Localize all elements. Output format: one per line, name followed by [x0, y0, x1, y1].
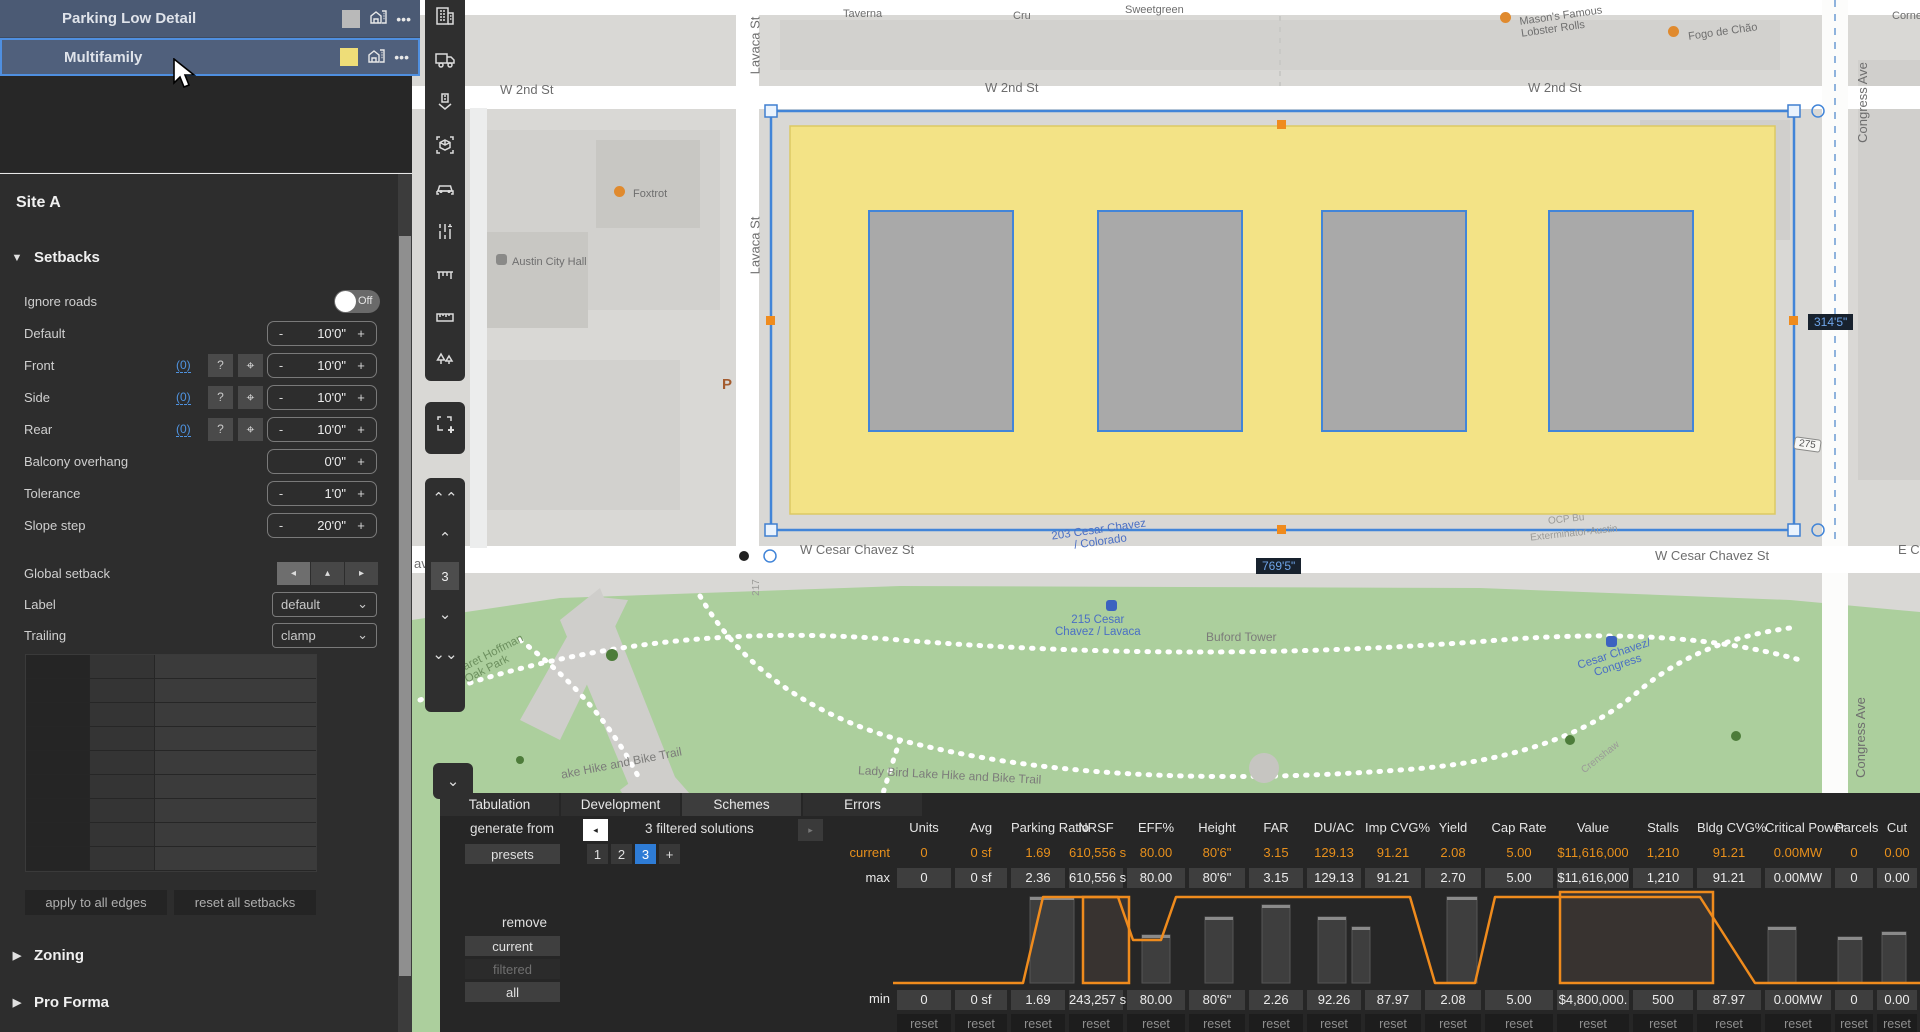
stepper-value[interactable]: 10'0"	[294, 390, 346, 405]
cur-value: 2.08	[1425, 845, 1481, 860]
mn-value: 0.00	[1877, 990, 1917, 1010]
setback-stepper[interactable]: -20'0"+	[267, 513, 377, 538]
setback-row: Balcony overhang0'0"+	[0, 448, 412, 474]
restaurant-icon	[1500, 12, 1511, 23]
ignore-roads-toggle[interactable]: Off	[334, 290, 380, 313]
column-header: Stalls	[1633, 820, 1693, 835]
cur-value: 1,210	[1633, 845, 1693, 860]
column-header: Cut	[1877, 820, 1917, 835]
mx-value: 0 sf	[955, 868, 1007, 888]
cur-value: 80'6"	[1189, 845, 1245, 860]
lanes-adjust-icon[interactable]	[425, 209, 465, 252]
filtered-solutions-label: 3 filtered solutions	[645, 821, 754, 836]
mx-value: 3.15	[1249, 868, 1303, 888]
global-setback-arrow-button[interactable]: ◂	[277, 562, 310, 585]
collapse-triangle-icon[interactable]: ▼	[0, 252, 34, 264]
expand-triangle-icon[interactable]: ▶	[0, 996, 34, 1009]
edge-count-link[interactable]: (0)	[176, 390, 191, 405]
layers-panel: Parking Low Detail•••Multifamily•••	[0, 0, 420, 76]
reset-button[interactable]: reset	[1835, 1014, 1873, 1032]
reset-button[interactable]: reset	[1189, 1014, 1245, 1032]
mn-value: 1.69	[1011, 990, 1065, 1010]
edge-grid-row[interactable]	[26, 799, 316, 823]
level-switcher: ⌃⌃ ⌃ 3 ⌄ ⌄⌄	[425, 478, 465, 712]
setbacks-section-label: Setbacks	[34, 249, 100, 266]
setback-row: Side(0)?⌖-10'0"+	[0, 384, 412, 410]
current-row-label: current	[830, 845, 890, 860]
mx-value: $11,616,000	[1557, 868, 1629, 888]
max-row-label: max	[830, 870, 890, 885]
scheme-button-1[interactable]: 1	[587, 844, 608, 864]
edge-count-link[interactable]: (0)	[176, 422, 191, 437]
stepper-minus-button[interactable]: -	[268, 358, 294, 373]
sidebar-scrollbar[interactable]	[398, 174, 412, 1032]
tab-tabulation[interactable]: Tabulation	[440, 793, 559, 816]
edge-grid-row[interactable]	[26, 775, 316, 799]
transit-stop-icon	[1606, 636, 1617, 647]
setback-stepper[interactable]: -1'0"+	[267, 481, 377, 506]
car-icon[interactable]	[425, 166, 465, 209]
dimension-badge-height: 314'5"	[1808, 314, 1853, 330]
mx-value: 0.00MW	[1765, 868, 1831, 888]
mx-value: 91.21	[1697, 868, 1761, 888]
cur-value: 0.00MW	[1765, 845, 1831, 860]
layer-menu-button[interactable]: •••	[394, 49, 409, 65]
setback-row-label: Side	[0, 390, 50, 405]
chevron-down-icon: ⌄	[357, 596, 368, 612]
transit-stop-icon	[1106, 600, 1117, 611]
bench-icon[interactable]	[425, 252, 465, 295]
setback-row: Default-10'0"+	[0, 320, 412, 346]
mn-value: 0.00MW	[1765, 990, 1831, 1010]
scheme-button-2[interactable]: 2	[611, 844, 632, 864]
trailing-dropdown[interactable]: clamp⌄	[272, 623, 377, 648]
building-icon[interactable]	[367, 48, 385, 67]
reset-button[interactable]: reset	[1307, 1014, 1361, 1032]
mn-value: 87.97	[1697, 990, 1761, 1010]
city-hall-icon	[496, 254, 507, 265]
mx-value: 0	[897, 868, 951, 888]
global-setback-arrow-button[interactable]: ▴	[311, 562, 344, 585]
toggle-knob	[335, 291, 356, 312]
marquee-add-icon[interactable]	[425, 402, 465, 445]
mn-value: 80.00	[1127, 990, 1185, 1010]
mx-value: 80'6"	[1189, 868, 1245, 888]
zoning-section-label: Zoning	[34, 947, 84, 964]
mn-value: 243,257 s	[1069, 990, 1123, 1010]
mx-value: 1,210	[1633, 868, 1693, 888]
proforma-section-header[interactable]: ▶ Pro Forma	[0, 994, 109, 1011]
layer-name: Parking Low Detail	[0, 10, 342, 27]
office-building-icon[interactable]	[425, 0, 465, 37]
stepper-minus-button[interactable]: -	[268, 422, 294, 437]
mx-value: 0.00	[1877, 868, 1917, 888]
cur-value: 0 sf	[955, 845, 1007, 860]
reset-button[interactable]: reset	[1249, 1014, 1303, 1032]
cur-value: 610,556 s	[1069, 845, 1123, 860]
mn-value: 0	[897, 990, 951, 1010]
cur-value: 91.21	[1697, 845, 1761, 860]
prev-solution-button[interactable]: ◂	[583, 819, 608, 841]
zoning-section-header[interactable]: ▶ Zoning	[0, 947, 84, 964]
level-up-fast-button[interactable]: ⌃⌃	[425, 478, 465, 518]
stepper-value[interactable]: 1'0"	[294, 486, 346, 501]
mx-value: 5.00	[1485, 868, 1553, 888]
column-header: Cap Rate	[1485, 820, 1553, 835]
reset-button[interactable]: reset	[1557, 1014, 1629, 1032]
setback-row: Tolerance-1'0"+	[0, 480, 412, 506]
column-header: EFF%	[1127, 820, 1185, 835]
mx-value: 2.70	[1425, 868, 1481, 888]
setback-stepper[interactable]: -10'0"+	[267, 417, 377, 442]
edge-grid-row[interactable]	[26, 751, 316, 775]
column-header: Height	[1189, 820, 1245, 835]
mn-value: 0 sf	[955, 990, 1007, 1010]
building-icon[interactable]	[369, 9, 387, 28]
layer-menu-button[interactable]: •••	[396, 11, 411, 27]
level-down-button[interactable]: ⌄	[425, 594, 465, 634]
layer-name: Multifamily	[2, 49, 340, 66]
stepper-plus-button[interactable]: +	[346, 518, 376, 533]
help-button[interactable]: ?	[208, 354, 233, 377]
layer-row[interactable]: Parking Low Detail•••	[0, 0, 420, 38]
label-dropdown[interactable]: default⌄	[272, 592, 377, 617]
cur-value: 1.69	[1011, 845, 1065, 860]
global-setback-arrow-button[interactable]: ▸	[345, 562, 378, 585]
layer-color-swatch[interactable]	[342, 10, 360, 28]
setback-row-label: Slope step	[0, 518, 85, 533]
global-setback-label: Global setback	[0, 566, 110, 581]
label-row: Label default⌄	[0, 591, 412, 617]
global-setback-row: Global setback ◂▴▸	[0, 560, 412, 586]
column-header: Bldg CVG%	[1697, 820, 1761, 835]
cur-value: 5.00	[1485, 845, 1553, 860]
setback-row: Slope step-20'0"+	[0, 512, 412, 538]
edge-grid-row[interactable]	[26, 703, 316, 727]
reset-button[interactable]: reset	[897, 1014, 951, 1032]
setback-stepper[interactable]: 0'0"+	[267, 449, 377, 474]
setback-row-label: Rear	[0, 422, 52, 437]
edge-grid-row[interactable]	[26, 655, 316, 679]
reset-button[interactable]: reset	[1485, 1014, 1553, 1032]
setback-row: Ignore roadsOff	[0, 288, 412, 314]
cafe-icon	[614, 186, 625, 197]
column-header: Value	[1557, 820, 1629, 835]
setback-stepper[interactable]: -10'0"+	[267, 321, 377, 346]
remove-current-button[interactable]: current	[465, 936, 560, 956]
reset-button[interactable]: reset	[1365, 1014, 1421, 1032]
app-root: W 2nd StW 2nd StW 2nd StLavaca StLavaca …	[0, 0, 1920, 1032]
mx-value: 80.00	[1127, 868, 1185, 888]
stepper-plus-button[interactable]: +	[346, 454, 376, 469]
truck-icon[interactable]	[425, 37, 465, 80]
level-up-button[interactable]: ⌃	[425, 518, 465, 558]
mx-value: 0	[1835, 868, 1873, 888]
stepper-plus-button[interactable]: +	[346, 486, 376, 501]
reset-button[interactable]: reset	[1697, 1014, 1761, 1032]
reset-button[interactable]: reset	[1127, 1014, 1185, 1032]
help-button[interactable]: ?	[208, 418, 233, 441]
focus-3d-box-icon[interactable]	[425, 123, 465, 166]
setback-row: Front(0)?⌖-10'0"+	[0, 352, 412, 378]
column-header: NRSF	[1069, 820, 1123, 835]
setback-stepper[interactable]: -10'0"+	[267, 385, 377, 410]
cur-value: 3.15	[1249, 845, 1303, 860]
marquee-tool-panel	[425, 402, 465, 454]
column-header: Avg	[955, 820, 1007, 835]
generate-from-label: generate from	[470, 821, 554, 836]
stepper-plus-button[interactable]: +	[346, 326, 376, 341]
stepper-value[interactable]: 10'0"	[294, 422, 346, 437]
stepper-minus-button[interactable]: -	[268, 390, 294, 405]
site-title: Site A	[0, 174, 412, 212]
setback-row-label: Default	[0, 326, 65, 341]
column-header: Critical Power	[1765, 820, 1831, 835]
help-button[interactable]: ?	[208, 386, 233, 409]
stepper-value[interactable]: 10'0"	[294, 326, 346, 341]
scheme-button-3[interactable]: 3	[635, 844, 656, 864]
reset-button[interactable]: reset	[1069, 1014, 1123, 1032]
min-row-label: min	[830, 991, 890, 1006]
stepper-value[interactable]: 10'0"	[294, 358, 346, 373]
reset-button[interactable]: reset	[1425, 1014, 1481, 1032]
setback-row-label: Tolerance	[0, 486, 80, 501]
edge-grid-row[interactable]	[26, 823, 316, 847]
reset-button[interactable]: reset	[1877, 1014, 1917, 1032]
trees-icon[interactable]	[425, 338, 465, 381]
solver-bottom-panel: TabulationDevelopmentSchemesErrors gener…	[440, 793, 1920, 1032]
layer-row[interactable]: Multifamily•••	[0, 38, 420, 76]
chevron-down-icon: ⌄	[357, 627, 368, 643]
reset-button[interactable]: reset	[1633, 1014, 1693, 1032]
remove-all-button[interactable]: all	[465, 982, 560, 1002]
cur-value: 0	[1835, 845, 1873, 860]
tab-errors[interactable]: Errors	[803, 793, 922, 816]
tool-palette	[425, 0, 465, 381]
mn-value: 5.00	[1485, 990, 1553, 1010]
add-scheme-button[interactable]: +	[659, 844, 680, 864]
mn-value: 92.26	[1307, 990, 1361, 1010]
stepper-value[interactable]: 0'0"	[294, 454, 346, 469]
setback-row: Rear(0)?⌖-10'0"+	[0, 416, 412, 442]
cur-value: 80.00	[1127, 845, 1185, 860]
stepper-minus-button[interactable]: -	[268, 326, 294, 341]
column-header: FAR	[1249, 820, 1303, 835]
edge-count-link[interactable]: (0)	[176, 358, 191, 373]
tab-development[interactable]: Development	[561, 793, 680, 816]
column-header: Yield	[1425, 820, 1481, 835]
parking-marker: P	[722, 376, 732, 393]
next-solution-button[interactable]: ▸	[798, 819, 823, 841]
bottom-tabs: TabulationDevelopmentSchemesErrors	[440, 793, 1920, 816]
remove-label: remove	[502, 915, 547, 930]
reset-button[interactable]: reset	[1011, 1014, 1065, 1032]
setback-row-label: Front	[0, 358, 54, 373]
level-down-fast-button[interactable]: ⌄⌄	[425, 634, 465, 674]
cur-value: 0.00	[1877, 845, 1917, 860]
stepper-plus-button[interactable]: +	[346, 358, 376, 373]
restaurant-icon	[1668, 26, 1679, 37]
column-header: Parcels	[1835, 820, 1873, 835]
setbacks-section-header[interactable]: ▼ Setbacks	[0, 249, 100, 266]
reset-all-setbacks-button[interactable]: reset all setbacks	[174, 890, 316, 915]
trailing-row-label: Trailing	[0, 628, 66, 643]
column-header: Imp CVG%	[1365, 820, 1421, 835]
mx-value: 91.21	[1365, 868, 1421, 888]
expand-triangle-icon[interactable]: ▶	[0, 949, 34, 962]
column-header: Parking Ratio	[1011, 820, 1065, 835]
mn-value: 0	[1835, 990, 1873, 1010]
reset-button[interactable]: reset	[955, 1014, 1007, 1032]
cur-value: 91.21	[1365, 845, 1421, 860]
setback-row-label: Ignore roads	[0, 294, 97, 309]
mx-value: 610,556 s	[1069, 868, 1123, 888]
target-pick-button[interactable]: ⌖	[238, 418, 263, 441]
stepper-plus-button[interactable]: +	[346, 390, 376, 405]
cur-value: $11,616,000	[1557, 845, 1629, 860]
mx-value: 129.13	[1307, 868, 1361, 888]
dimension-badge-width: 769'5"	[1256, 558, 1301, 574]
stepper-plus-button[interactable]: +	[346, 422, 376, 437]
current-level-indicator[interactable]: 3	[431, 562, 459, 590]
apply-all-edges-button[interactable]: apply to all edges	[25, 890, 167, 915]
edge-grid-row[interactable]	[26, 847, 316, 871]
setback-row-label: Balcony overhang	[0, 454, 128, 469]
layers-panel-spacer	[0, 76, 412, 173]
place-building-icon[interactable]	[425, 80, 465, 123]
column-header: DU/AC	[1307, 820, 1361, 835]
edge-list-table[interactable]	[25, 654, 317, 872]
mn-value: $4,800,000.	[1557, 990, 1629, 1010]
mn-value: 87.97	[1365, 990, 1421, 1010]
mn-value: 2.26	[1249, 990, 1303, 1010]
edge-grid-row[interactable]	[26, 727, 316, 751]
target-pick-button[interactable]: ⌖	[238, 354, 263, 377]
mn-value: 80'6"	[1189, 990, 1245, 1010]
solver-range-chart	[893, 890, 1920, 990]
cur-value: 0	[897, 845, 951, 860]
column-header: Units	[897, 820, 951, 835]
reset-button[interactable]: reset	[1765, 1014, 1831, 1032]
mn-value: 2.08	[1425, 990, 1481, 1010]
stepper-value[interactable]: 20'0"	[294, 518, 346, 533]
setback-stepper[interactable]: -10'0"+	[267, 353, 377, 378]
edge-grid-row[interactable]	[26, 679, 316, 703]
tab-schemes[interactable]: Schemes	[682, 793, 801, 816]
cur-value: 129.13	[1307, 845, 1361, 860]
mn-value: 500	[1633, 990, 1693, 1010]
presets-button[interactable]: presets	[465, 844, 560, 864]
stepper-minus-button[interactable]: -	[268, 486, 294, 501]
target-pick-button[interactable]: ⌖	[238, 386, 263, 409]
label-row-label: Label	[0, 597, 56, 612]
site-settings-sidebar: Site A ▼ Setbacks Ignore roadsOffDefault…	[0, 173, 412, 1032]
proforma-section-label: Pro Forma	[34, 994, 109, 1011]
stepper-minus-button[interactable]: -	[268, 518, 294, 533]
mx-value: 2.36	[1011, 868, 1065, 888]
layer-color-swatch[interactable]	[340, 48, 358, 66]
remove-filtered-button[interactable]: filtered	[465, 959, 560, 979]
ruler-icon[interactable]	[425, 295, 465, 338]
trailing-row: Trailing clamp⌄	[0, 622, 412, 648]
